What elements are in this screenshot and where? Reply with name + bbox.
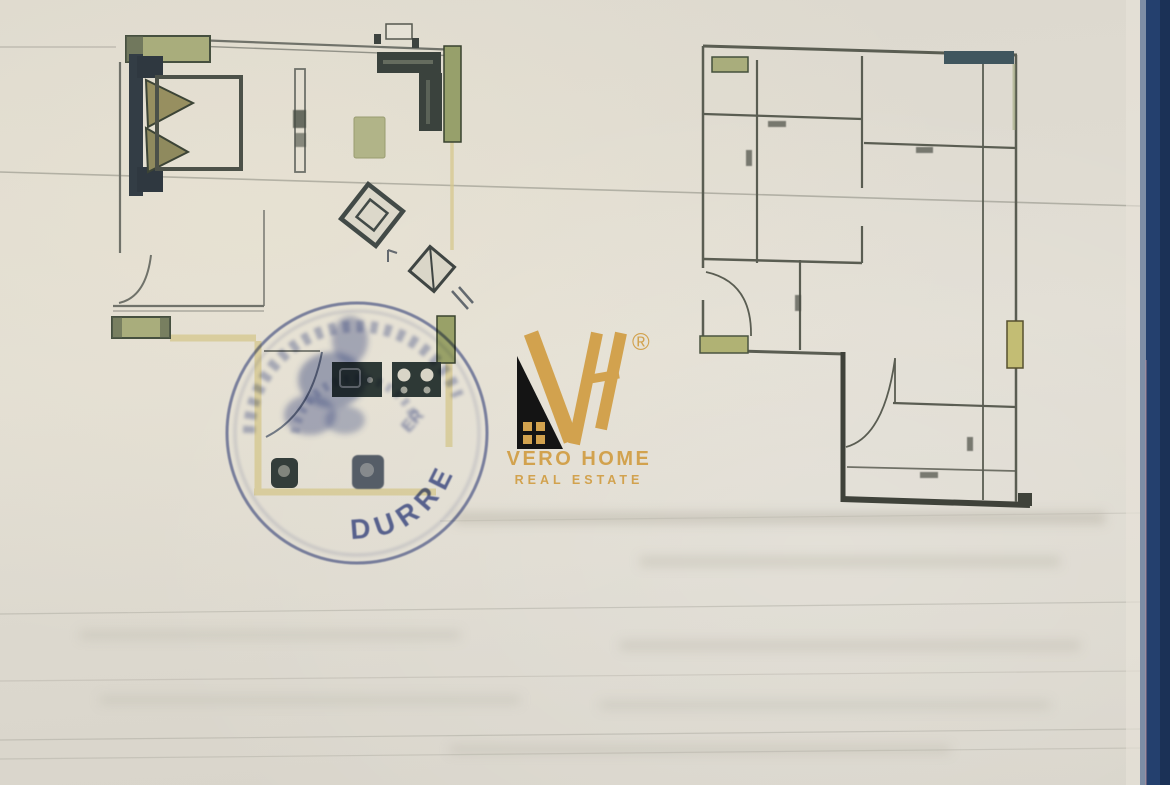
window-lower-left — [112, 317, 170, 338]
right-floor-plan — [700, 46, 1032, 506]
narrow-cabinet — [293, 69, 306, 172]
rug — [354, 117, 385, 158]
window — [712, 57, 748, 72]
wardrobe — [377, 52, 442, 131]
toilet — [271, 458, 298, 488]
square-fixture — [409, 246, 454, 291]
square-table — [341, 184, 403, 246]
window — [700, 336, 748, 353]
bedroom-door-arc — [119, 255, 151, 303]
stamp-text-fragment: ER — [397, 406, 427, 436]
wall-tick — [412, 38, 419, 48]
binder-edge — [1126, 0, 1170, 785]
pillow — [146, 80, 193, 127]
bleed-through-text — [80, 512, 1105, 754]
brand-name: VERO HOME — [500, 448, 658, 471]
window-strip-right — [444, 46, 461, 142]
pillow — [146, 128, 188, 172]
right-plan-interior-walls — [704, 56, 1016, 500]
window — [1007, 321, 1023, 368]
double-bed — [129, 54, 241, 196]
top-wall-fixture — [386, 24, 412, 39]
round-stamp: DURRES ER — [0, 0, 487, 563]
wall-end-block — [1018, 493, 1032, 506]
washbasin — [352, 455, 384, 489]
scanned-floor-plan-sheet: DURRES ER ® VERO HOME REAL ESTATE — [0, 0, 1170, 785]
dimension-marks — [746, 121, 973, 478]
brand-tagline: REAL ESTATE — [500, 473, 658, 487]
left-plan-highlight-walls — [170, 142, 452, 492]
left-plan-walls — [113, 39, 460, 351]
brand-logo: VERO HOME REAL ESTATE — [500, 326, 658, 487]
nightstand — [137, 56, 163, 78]
window — [944, 51, 1014, 64]
stamp-emblem — [284, 316, 368, 435]
wall-tick — [374, 34, 381, 44]
